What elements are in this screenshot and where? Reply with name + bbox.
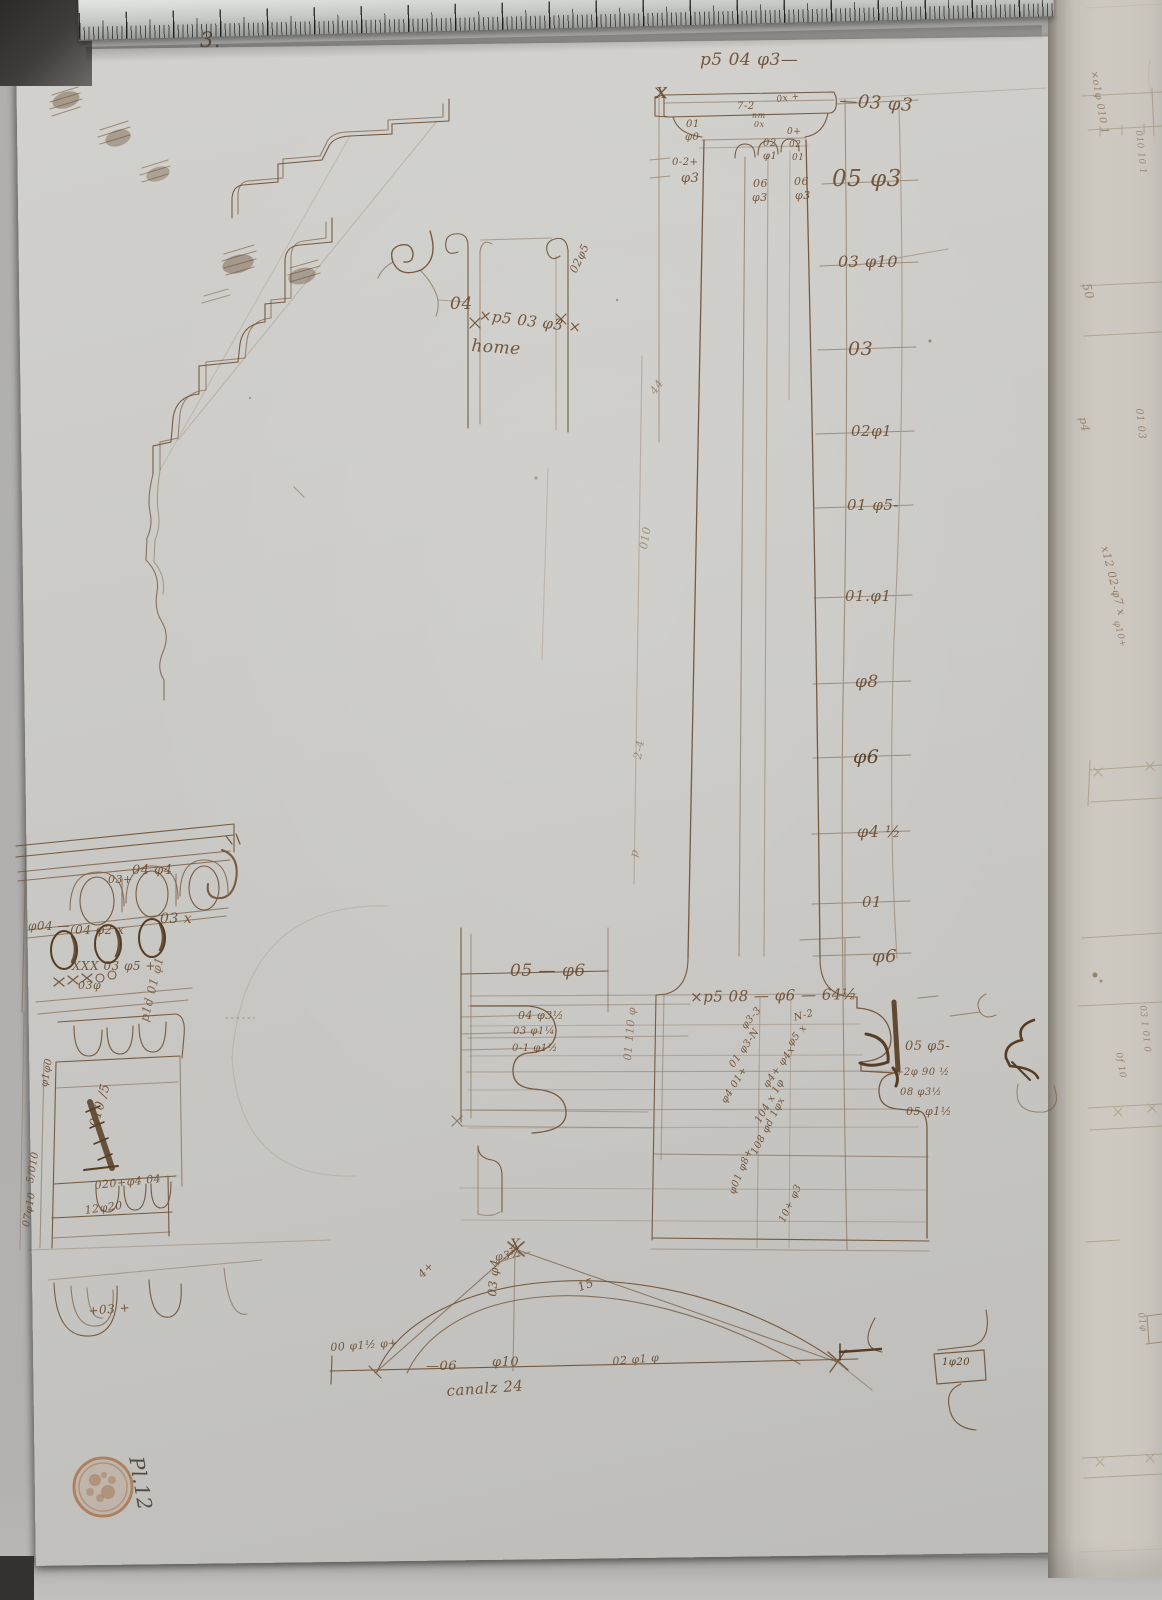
dark-profile-sketch: [950, 994, 1056, 1112]
column-shaft-sketch: [634, 95, 820, 958]
cornice-profile-sketch: [50, 87, 449, 700]
egg-and-dart-capital-sketch: [16, 824, 240, 1014]
dimension-lines-right: [800, 88, 1046, 1250]
collection-stamp: [74, 1458, 132, 1516]
misc-marks: [226, 299, 1103, 1176]
moulding-detail-sketch: [446, 234, 568, 432]
photographed-manuscript-scene: 3.p5 04 φ3—X—03 φ305 φ301φ00-2+φ37-20x +…: [0, 0, 1162, 1600]
scotia-arcs-sketch: [28, 1240, 330, 1336]
entablature-blocks-left-sketch: [20, 1012, 184, 1250]
cyma-profile-sketch: [840, 1310, 1162, 1430]
scroll-modillion-sketch: [378, 231, 468, 316]
architectural-sketch-svg: [0, 0, 1162, 1600]
column-base-large-sketch: [460, 958, 938, 1251]
flute-construction-sketch: [330, 1242, 872, 1390]
facing-page-lines: [1078, 4, 1162, 1552]
doric-capital-sketch: [655, 88, 836, 158]
